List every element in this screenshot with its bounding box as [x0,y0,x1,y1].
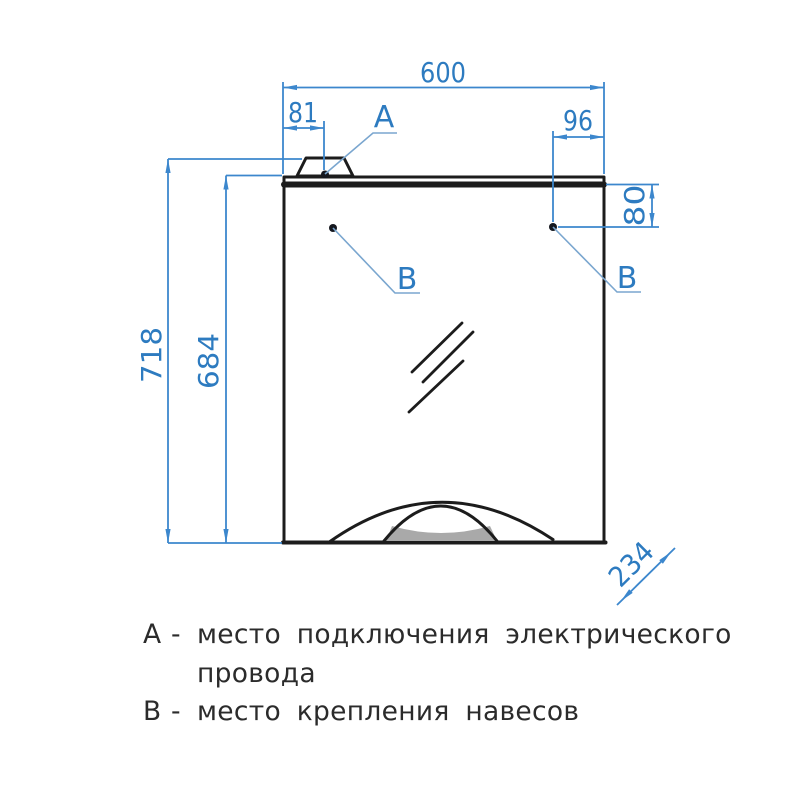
marker-label-a: А [374,100,395,135]
dim-text-96: 96 [563,104,593,137]
legend-row-b: В - место крепления навесов [143,693,732,732]
dim-text-80: 80 [618,185,651,227]
dim-text-718: 718 [135,327,168,383]
legend-key-b: В [143,693,171,732]
legend: А - место подключения электрического про… [143,616,732,732]
legend-text-a: место подключения электрического провода [197,616,732,693]
arrow-684-bottom [223,529,228,543]
arrow-718-bottom [165,529,170,543]
legend-row-a: А - место подключения электрического про… [143,616,732,693]
arrow-600-left [283,85,297,90]
legend-text-a-line1: место подключения электрического [197,619,732,650]
arrow-600-right [590,85,604,90]
legend-text-b: место крепления навесов [197,693,732,732]
arrow-718-top [165,159,170,173]
dim-text-81: 81 [288,96,318,129]
marker-label-b-left: В [397,262,418,297]
cabinet-drawing [283,158,606,543]
dim-text-234: 234 [602,535,661,594]
legend-key-a: А [143,616,171,693]
legend-text-a-line2: провода [197,658,316,689]
dim-text-600: 600 [420,56,466,89]
legend-text-b-line1: место крепления навесов [197,696,579,727]
dim-text-684: 684 [192,333,225,389]
arrow-684-top [223,176,228,190]
drawing-canvas: 600 81 96 80 718 684 234 А В В А - место… [0,0,800,800]
legend-dash-b: - [171,693,197,732]
legend-dash-a: - [171,616,197,693]
marker-label-b-right: В [617,261,638,296]
